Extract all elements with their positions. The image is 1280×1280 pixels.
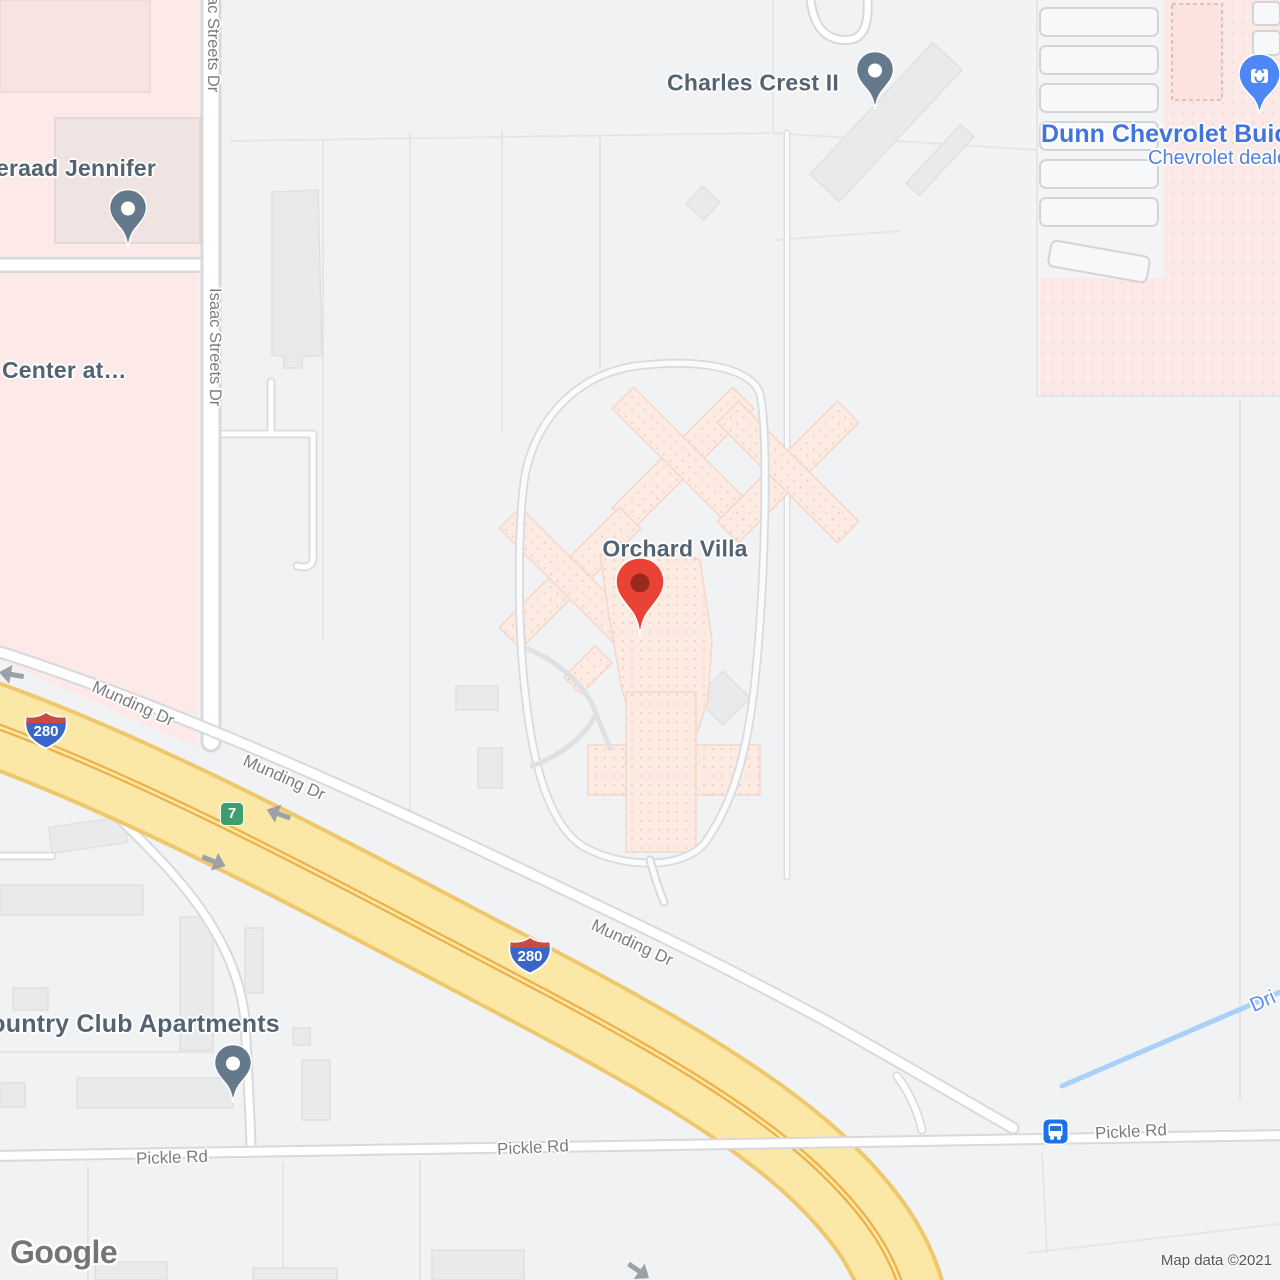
poi-label-orchard-villa[interactable]: Orchard Villa [602,536,747,563]
country-club-pin[interactable] [213,1043,253,1104]
route-number: 280 [23,723,69,740]
interstate-280-shield: 280 [23,710,69,750]
bus-glyph-icon [1042,1118,1069,1145]
road-label-isaac-streets-dr: Isaac Streets Dr [205,288,224,406]
slate-map-pin-icon [108,188,148,249]
exit-number: 7 [228,805,236,822]
poi-label-charles-crest[interactable]: Charles Crest II [667,70,839,97]
slate-map-pin-icon [213,1043,253,1104]
shopping-bag-pin-icon [1239,52,1280,116]
charles-crest-pin[interactable] [855,50,895,111]
poi-label-dunn-title[interactable]: Dunn Chevrolet Buick [1041,120,1280,149]
poi-label-jennifer[interactable]: eraad Jennifer [0,155,156,182]
road-label-pickle-rd-1: Pickle Rd [136,1147,208,1169]
poi-label-dunn-subtitle[interactable]: Chevrolet dealer [1148,147,1280,170]
dunn-chevrolet-pin[interactable] [1239,52,1280,116]
road-label-pickle-rd-2: Pickle Rd [497,1136,570,1160]
road-label-isaac-streets-dr-top: Isaac Streets Dr [203,0,222,92]
jennifer-pin[interactable] [108,188,148,249]
bus-stop-icon[interactable] [1042,1118,1069,1145]
route-7-badge: 7 [220,802,244,826]
poi-label-country-club[interactable]: Country Club Apartments [0,1010,280,1039]
interstate-280-shield-2: 280 [507,935,553,975]
google-logo[interactable]: Google [10,1234,117,1271]
poi-label-center-at[interactable]: Center at… [2,357,127,384]
map-viewport[interactable]: 280 280 7 Orchard Villa Charles Crest II… [0,0,1280,1280]
road-label-pickle-rd-3: Pickle Rd [1095,1120,1168,1144]
map-attribution: Map data ©2021 [1161,1252,1272,1269]
red-map-pin-icon [614,556,666,640]
slate-map-pin-icon [855,50,895,111]
map-canvas[interactable] [0,0,1280,1280]
orchard-villa-pin[interactable] [614,556,666,640]
route-number: 280 [507,948,553,965]
